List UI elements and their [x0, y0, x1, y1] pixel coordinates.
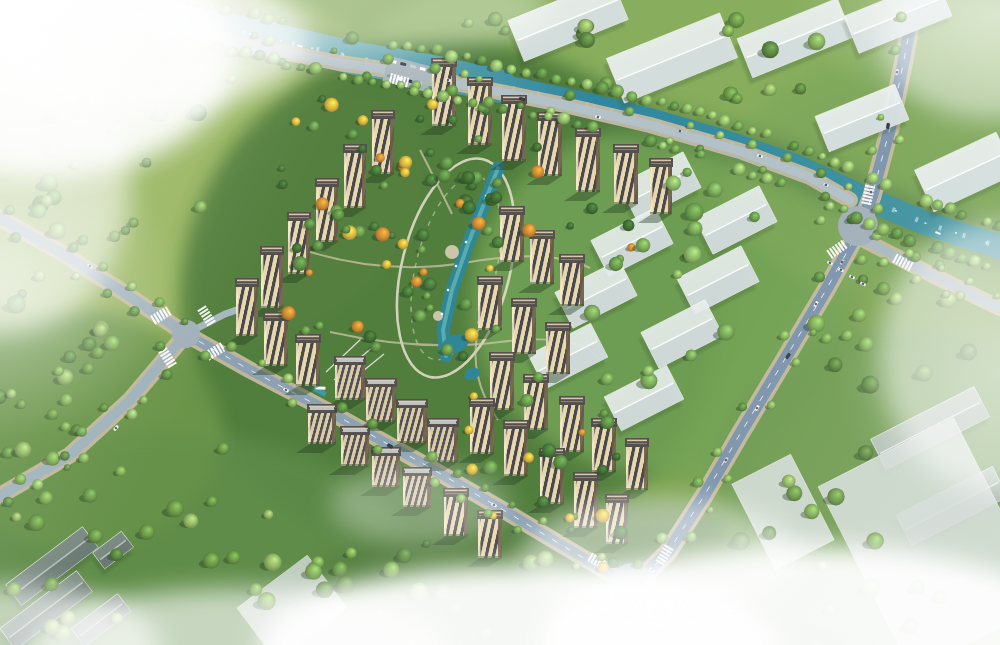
tree — [371, 165, 382, 176]
tree — [490, 59, 503, 72]
tree — [426, 148, 435, 157]
tree — [47, 408, 59, 420]
tree — [429, 63, 440, 74]
tree — [891, 227, 903, 239]
tree — [278, 165, 285, 172]
tree — [777, 178, 787, 188]
tree — [644, 135, 657, 148]
tree — [358, 115, 368, 125]
tree — [464, 426, 473, 435]
tree — [830, 157, 840, 167]
tree — [88, 529, 103, 544]
fog-patch — [330, 465, 510, 545]
tree — [264, 510, 274, 520]
tree — [397, 81, 405, 89]
tree — [93, 323, 108, 338]
tree — [217, 442, 230, 455]
tree — [200, 350, 211, 361]
tree — [522, 68, 531, 77]
tree — [723, 474, 732, 483]
tree — [39, 491, 53, 505]
tree — [749, 212, 760, 223]
tree — [507, 65, 517, 75]
tree — [342, 225, 350, 233]
tree — [382, 80, 391, 89]
tree — [611, 85, 624, 98]
tree — [625, 107, 635, 117]
tree — [324, 98, 338, 112]
tree — [367, 418, 378, 429]
tree — [332, 561, 348, 577]
tree — [63, 350, 76, 363]
tree — [513, 526, 521, 534]
tree — [203, 552, 220, 569]
tree — [641, 95, 652, 106]
tree — [821, 192, 831, 202]
tree — [6, 389, 16, 399]
tree — [876, 223, 889, 236]
tree — [732, 93, 743, 104]
tree — [856, 254, 867, 265]
tree — [816, 215, 826, 225]
tree — [128, 218, 138, 228]
tree — [531, 165, 544, 178]
tree — [903, 234, 916, 247]
tree — [490, 191, 502, 203]
tree — [312, 240, 323, 251]
tree — [305, 563, 322, 580]
tree — [573, 120, 582, 129]
tree — [304, 219, 315, 230]
tree — [584, 305, 601, 322]
tree — [579, 429, 586, 436]
tree — [375, 227, 390, 242]
tree — [609, 257, 623, 271]
tree — [398, 239, 409, 250]
tree — [292, 243, 302, 253]
tree — [601, 372, 614, 385]
tree — [821, 333, 832, 344]
tree — [858, 445, 873, 460]
tree — [722, 25, 734, 37]
tree — [463, 52, 471, 60]
fountain-jet — [447, 289, 450, 292]
tree — [100, 403, 109, 412]
tree — [827, 488, 844, 505]
tree — [626, 91, 637, 102]
tree — [779, 330, 790, 341]
tree — [426, 451, 437, 462]
tree — [483, 460, 498, 475]
tree — [878, 114, 885, 121]
tree — [3, 497, 14, 508]
tree — [339, 73, 347, 81]
tree — [567, 222, 574, 229]
tree — [842, 160, 855, 173]
tree — [582, 79, 593, 90]
tree — [465, 328, 479, 342]
tree — [226, 551, 240, 565]
tree — [673, 270, 682, 279]
tree — [445, 50, 458, 63]
tree — [659, 142, 667, 150]
tree — [719, 115, 731, 127]
tree — [477, 55, 488, 66]
tree — [54, 366, 64, 376]
tree — [306, 269, 313, 276]
tree — [332, 209, 344, 221]
tree — [695, 106, 705, 116]
tree — [423, 88, 433, 98]
tree — [533, 372, 543, 382]
tree — [472, 216, 486, 230]
tree — [154, 297, 164, 307]
tree — [461, 70, 469, 78]
tree — [417, 229, 430, 242]
tree — [353, 75, 363, 85]
tree — [814, 271, 825, 282]
tree — [587, 121, 598, 132]
tree — [795, 83, 806, 94]
tree — [579, 32, 595, 48]
tree — [716, 131, 724, 139]
tree — [687, 221, 702, 236]
tree — [418, 245, 426, 253]
tree — [82, 362, 94, 374]
tree — [816, 168, 826, 178]
tree — [468, 98, 477, 107]
tree — [520, 394, 533, 407]
tree — [337, 402, 348, 413]
tree — [623, 220, 635, 232]
tree — [762, 128, 772, 138]
tree — [532, 142, 542, 152]
tree — [762, 41, 779, 58]
tree — [684, 245, 702, 263]
tree — [636, 238, 651, 253]
tree — [944, 202, 956, 214]
tree — [807, 315, 825, 333]
tree — [373, 445, 382, 454]
tree — [733, 121, 743, 131]
tree — [810, 329, 817, 336]
tree — [32, 479, 43, 490]
fountain-jet — [465, 241, 468, 244]
tree — [666, 137, 673, 144]
tree — [453, 96, 462, 105]
tree — [841, 330, 853, 342]
tree — [61, 422, 71, 432]
tree — [345, 547, 356, 558]
tree — [782, 474, 796, 488]
tree — [364, 330, 377, 343]
tree — [83, 488, 98, 503]
tree — [529, 112, 536, 119]
tree — [293, 256, 308, 271]
tree — [804, 504, 819, 519]
tree — [77, 426, 87, 436]
tree — [733, 163, 746, 176]
tree — [595, 81, 609, 95]
tree — [409, 86, 419, 96]
tree — [319, 95, 327, 103]
tree — [551, 74, 561, 84]
tree — [643, 365, 654, 376]
tree — [483, 96, 494, 107]
tree — [880, 178, 892, 190]
tree — [658, 97, 667, 106]
tree — [476, 75, 483, 82]
tree — [557, 112, 570, 125]
tree — [819, 153, 826, 160]
tree — [707, 182, 723, 198]
fountain-jet — [441, 313, 444, 316]
tree — [376, 153, 385, 162]
tree — [358, 144, 366, 152]
tree — [181, 318, 188, 325]
tree — [840, 205, 848, 213]
tree — [64, 464, 71, 471]
park-plaza — [445, 245, 459, 259]
tree — [682, 168, 691, 177]
tree — [15, 474, 26, 485]
tree — [139, 396, 148, 405]
tree — [670, 102, 679, 111]
tree — [400, 168, 410, 178]
tree — [867, 172, 879, 184]
tree — [369, 78, 376, 85]
tree — [767, 401, 776, 410]
tree — [155, 341, 165, 351]
tree — [792, 358, 801, 367]
tree — [110, 548, 123, 561]
tree — [612, 453, 620, 461]
tree — [161, 369, 172, 380]
tree — [226, 341, 237, 352]
tree — [15, 441, 32, 458]
tree — [60, 394, 73, 407]
tree — [475, 135, 483, 143]
tree — [685, 203, 704, 222]
tree — [697, 150, 706, 159]
tree — [863, 218, 876, 231]
tree — [492, 325, 500, 333]
tree — [828, 357, 843, 372]
tree — [281, 306, 295, 320]
tree — [309, 121, 320, 132]
tree — [352, 321, 364, 333]
tree — [397, 548, 413, 564]
tree — [399, 156, 412, 169]
tree — [666, 175, 681, 190]
tree — [553, 455, 568, 470]
scene-svg — [0, 0, 1000, 645]
tree — [194, 200, 207, 213]
tree — [423, 277, 437, 291]
tree — [845, 183, 852, 190]
tree — [437, 90, 449, 102]
tree — [523, 452, 534, 463]
tree — [461, 171, 475, 185]
tree — [103, 289, 113, 299]
tree — [867, 146, 877, 156]
tree — [402, 286, 414, 298]
tree — [586, 202, 598, 214]
tree — [600, 415, 614, 429]
tree — [462, 201, 476, 215]
tree — [578, 19, 594, 35]
tree — [45, 451, 60, 466]
tree — [682, 103, 693, 114]
tree — [283, 373, 293, 383]
park-plaza — [433, 311, 443, 321]
fountain-jet — [455, 265, 458, 268]
tree — [850, 211, 863, 224]
tree — [448, 115, 458, 125]
tree — [420, 268, 428, 276]
tree — [825, 201, 834, 210]
tree — [762, 173, 773, 184]
tree — [687, 122, 695, 130]
tree — [748, 140, 757, 149]
tree — [783, 153, 793, 163]
tree — [517, 102, 524, 109]
tree — [564, 90, 575, 101]
tree — [470, 392, 478, 400]
tree — [685, 350, 697, 362]
tree — [932, 199, 943, 210]
tree — [292, 117, 301, 126]
tree — [537, 496, 549, 508]
tree — [142, 158, 152, 168]
tree — [382, 260, 391, 269]
tree — [347, 129, 358, 140]
tree — [544, 112, 552, 120]
tree — [738, 403, 747, 412]
tree — [127, 282, 137, 292]
tree — [597, 465, 608, 476]
tree — [17, 400, 27, 410]
tree — [416, 115, 424, 123]
tree — [492, 236, 504, 248]
tree — [808, 33, 826, 51]
tree — [789, 141, 799, 151]
tree — [498, 104, 508, 114]
tree — [278, 180, 287, 189]
tree — [858, 336, 873, 351]
tree — [288, 398, 297, 407]
tree — [460, 298, 473, 311]
tree — [129, 306, 140, 317]
tree — [486, 265, 493, 272]
fog-patch — [520, 498, 800, 618]
tree — [717, 323, 734, 340]
tree — [166, 500, 184, 518]
tree — [567, 77, 575, 85]
tree — [206, 496, 217, 507]
tree — [877, 282, 891, 296]
tree — [380, 182, 388, 190]
tree — [60, 451, 70, 461]
tree — [423, 292, 431, 300]
tree — [458, 351, 468, 361]
tree — [104, 335, 120, 351]
tree — [536, 67, 548, 79]
tree — [315, 321, 323, 329]
tree — [414, 310, 427, 323]
tree — [316, 197, 329, 210]
tree — [441, 344, 453, 356]
tree — [879, 257, 889, 267]
tree — [115, 466, 126, 477]
tree — [861, 376, 879, 394]
tree — [437, 169, 451, 183]
tree — [522, 223, 536, 237]
tree — [748, 127, 757, 136]
tree — [542, 443, 556, 457]
tree — [78, 453, 89, 464]
aerial-rendering — [0, 0, 1000, 645]
tree — [957, 210, 967, 220]
tree — [873, 203, 884, 214]
tree — [905, 249, 914, 258]
tree — [483, 226, 493, 236]
tree — [866, 532, 883, 549]
tree — [748, 171, 757, 180]
tree — [713, 447, 723, 457]
tree — [139, 524, 155, 540]
tree — [264, 553, 282, 571]
tree — [492, 178, 502, 188]
tree — [28, 514, 45, 531]
tree — [259, 359, 266, 366]
tree — [183, 513, 198, 528]
tree — [301, 326, 310, 335]
tree — [370, 341, 381, 352]
tree — [759, 166, 767, 174]
tree — [804, 146, 814, 156]
tree — [764, 83, 777, 96]
tree — [895, 135, 904, 144]
tree — [12, 512, 22, 522]
tree — [126, 409, 137, 420]
tree — [426, 304, 434, 312]
tree — [440, 156, 454, 170]
tree — [852, 308, 866, 322]
tree — [708, 111, 717, 120]
tree — [693, 477, 704, 488]
tree — [309, 62, 322, 75]
tree — [671, 144, 680, 153]
